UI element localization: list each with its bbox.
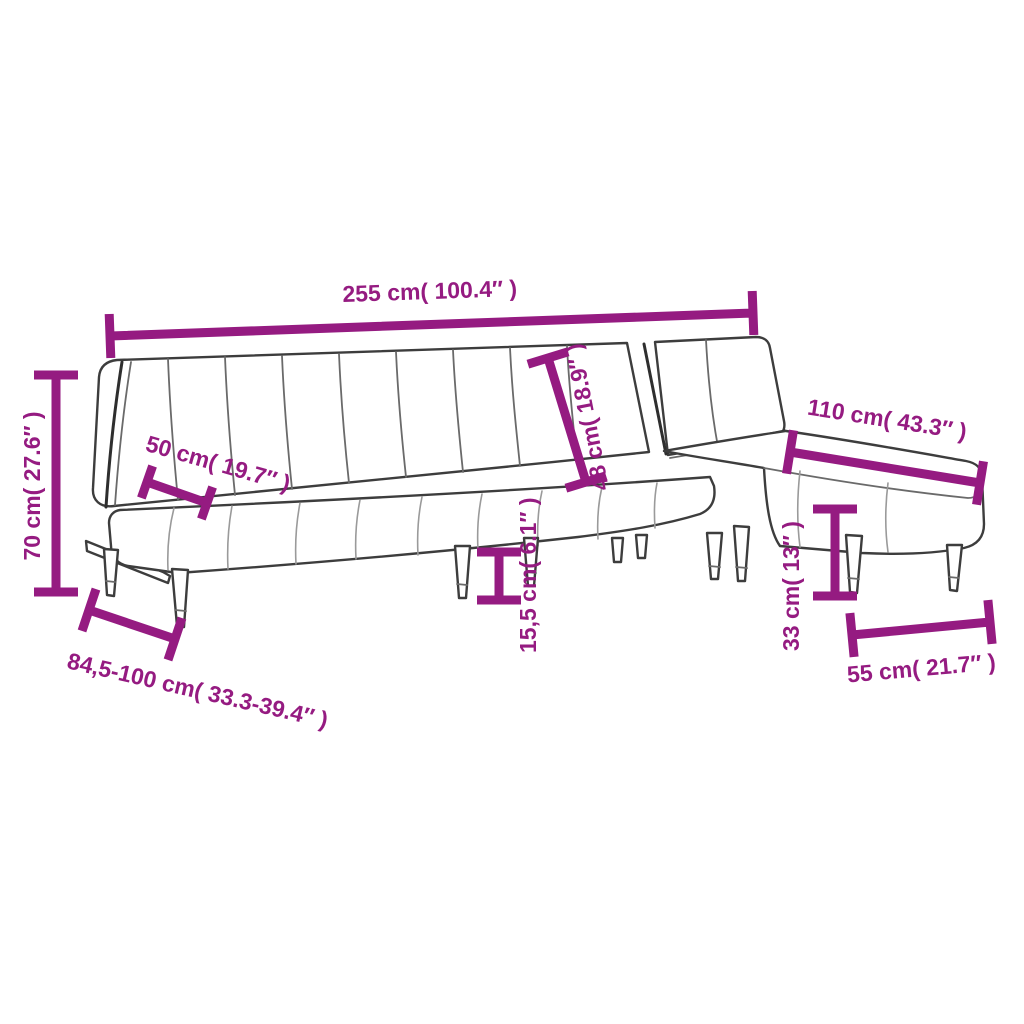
sofa-leg	[707, 533, 722, 579]
dimension-chaise-width: 55 cm( 21.7″ )	[846, 600, 997, 687]
sofa-leg	[612, 538, 623, 562]
sofa-leg	[734, 526, 749, 581]
sofa-leg-foot-line	[736, 567, 747, 568]
sofa-leg	[947, 545, 962, 591]
sofa-leg-foot-line	[949, 577, 959, 578]
diagram-svg: 255 cm( 100.4″ ) 70 cm( 27.6″ ) 50 cm( 1…	[0, 0, 1024, 1024]
sofa-leg	[846, 535, 862, 593]
sofa-leg-foot-line	[709, 566, 720, 567]
dimension-label-chaise-width: 55 cm( 21.7″ )	[846, 649, 997, 688]
dimension-label-overall-length: 255 cm( 100.4″ )	[342, 275, 517, 307]
dimension-label-overall-height: 70 cm( 27.6″ )	[19, 411, 45, 560]
dimension-label-floor-depth-range: 84,5-100 cm( 33.3-39.4″ )	[65, 648, 331, 733]
dimension-floor-depth-range: 84,5-100 cm( 33.3-39.4″ )	[65, 589, 331, 733]
dimension-label-seat-height: 33 cm( 13″ )	[778, 521, 804, 651]
sofa-dimension-diagram: 255 cm( 100.4″ ) 70 cm( 27.6″ ) 50 cm( 1…	[0, 0, 1024, 1024]
sofa-leg-foot-line	[848, 578, 859, 579]
sofa-leg-foot-line	[106, 581, 115, 582]
sofa-leg-foot-line	[175, 610, 186, 611]
dimension-overall-height: 70 cm( 27.6″ )	[19, 375, 78, 592]
dimension-label-ground-clearance: 15,5 cm( 6.1″ )	[515, 498, 541, 654]
dimension-line	[850, 600, 992, 657]
sofa-leg	[455, 546, 470, 598]
sofa-leg-foot-line	[457, 584, 467, 585]
sofa-leg	[636, 535, 647, 558]
sofa-leg	[104, 549, 118, 596]
dimension-line	[82, 589, 182, 660]
